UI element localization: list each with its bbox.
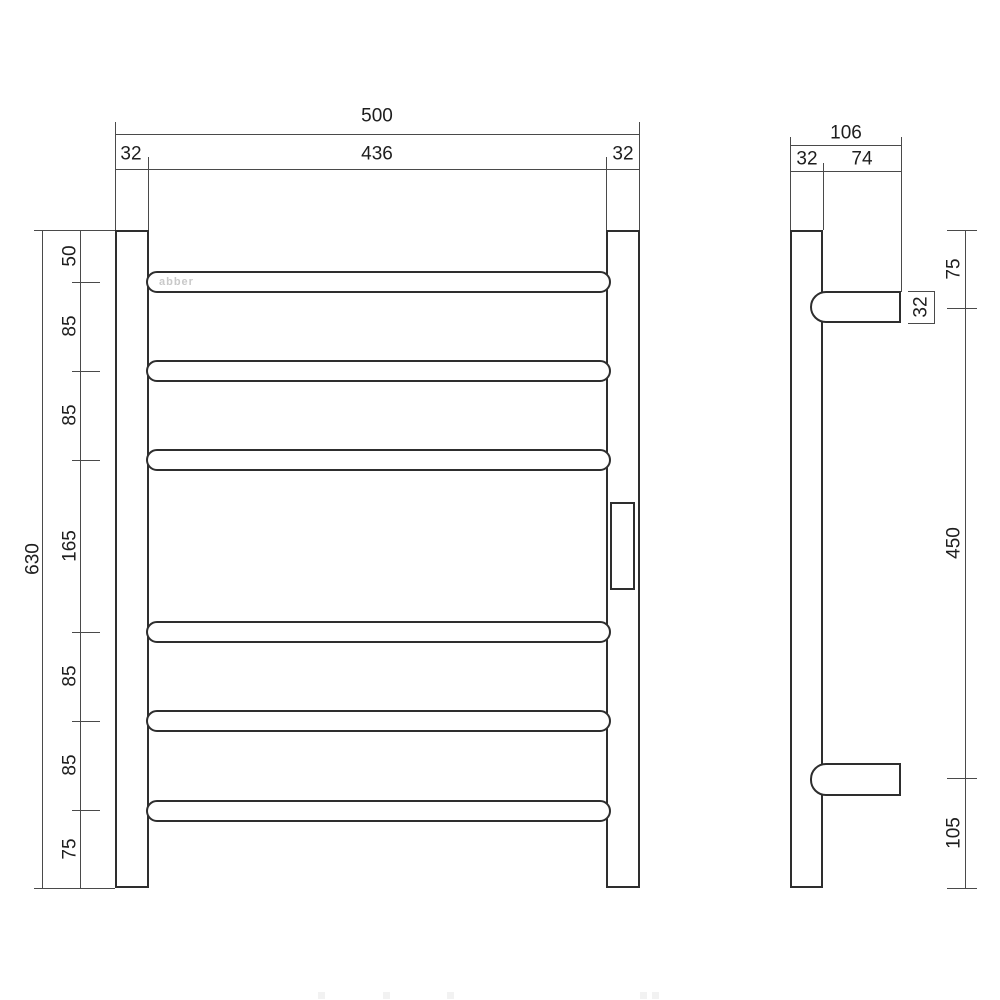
watermark-fragment (383, 992, 390, 999)
dim-label-side-tube-depth: 32 (796, 150, 817, 169)
tick-side-bracket-top (947, 308, 977, 309)
ext-front-inner-left (148, 157, 149, 230)
tick-rail3 (72, 460, 100, 461)
dim-label-front-total-height: 630 (24, 543, 43, 575)
dim-label-front-right-margin: 32 (612, 145, 633, 164)
dim-label-segment-6: 85 (61, 754, 80, 775)
ext-side-left (790, 137, 791, 230)
dimline-side-chain (965, 230, 966, 888)
ext-front-top (34, 230, 115, 231)
dim-label-front-inner-width: 436 (361, 145, 393, 164)
dim-label-segment-4: 165 (61, 530, 80, 562)
dim-label-side-offset-bottom: 105 (945, 817, 964, 849)
dim-label-segment-1: 50 (61, 245, 80, 266)
dim-label-segment-3: 85 (61, 404, 80, 425)
watermark-fragment (318, 992, 325, 999)
dim-label-segment-2: 85 (61, 315, 80, 336)
watermark-fragment (447, 992, 454, 999)
side-bracket-top (810, 291, 901, 323)
dimline-side-total-depth (790, 145, 902, 146)
brand-logo: abber (159, 277, 194, 288)
ext-front-outer-left (115, 122, 116, 230)
dim-label-side-offset-top: 75 (945, 258, 964, 279)
side-bracket-bottom (810, 763, 901, 796)
tick-side-bottom (947, 888, 977, 889)
watermark-fragment (640, 992, 647, 999)
tick-rail4 (72, 632, 100, 633)
ext-front-outer-right (639, 122, 640, 230)
tick-rail2 (72, 371, 100, 372)
rail-1 (146, 271, 611, 293)
ext-arm-bottom (908, 323, 934, 324)
dimline-front-inner-width (115, 169, 640, 170)
tick-rail5 (72, 721, 100, 722)
ext-front-bottom (34, 888, 115, 889)
tick-rail6 (72, 810, 100, 811)
dim-label-front-left-margin: 32 (120, 145, 141, 164)
rail-2 (146, 360, 611, 382)
watermark-fragment (652, 992, 659, 999)
rail-5 (146, 710, 611, 732)
dim-label-segment-7: 75 (61, 838, 80, 859)
dim-label-front-total-width: 500 (361, 107, 393, 126)
rail-6 (146, 800, 611, 822)
dim-label-side-total-depth: 106 (830, 124, 862, 143)
dimline-side-split-depth (790, 171, 902, 172)
ext-front-inner-right (606, 157, 607, 230)
ext-side-right (901, 137, 902, 292)
dim-label-side-bracket-span: 450 (945, 527, 964, 559)
tick-side-bracket-bottom (947, 778, 977, 779)
dim-label-arm-thickness: 32 (912, 296, 931, 317)
ext-side-tube-edge (823, 163, 824, 230)
tick-side-top (947, 230, 977, 231)
dimline-arm-thickness (934, 291, 935, 324)
dim-label-side-arm-length: 74 (851, 150, 872, 169)
ext-arm-top (908, 291, 934, 292)
dimline-front-total-width (115, 134, 640, 135)
tick-rail1 (72, 282, 100, 283)
rail-4 (146, 621, 611, 643)
towel-rail-technical-drawing: abber 500 32 436 32 630 50 85 85 165 85 … (0, 0, 1000, 1000)
dim-label-segment-5: 85 (61, 665, 80, 686)
heater-control-box (610, 502, 635, 590)
rail-3 (146, 449, 611, 471)
front-left-post (115, 230, 149, 888)
